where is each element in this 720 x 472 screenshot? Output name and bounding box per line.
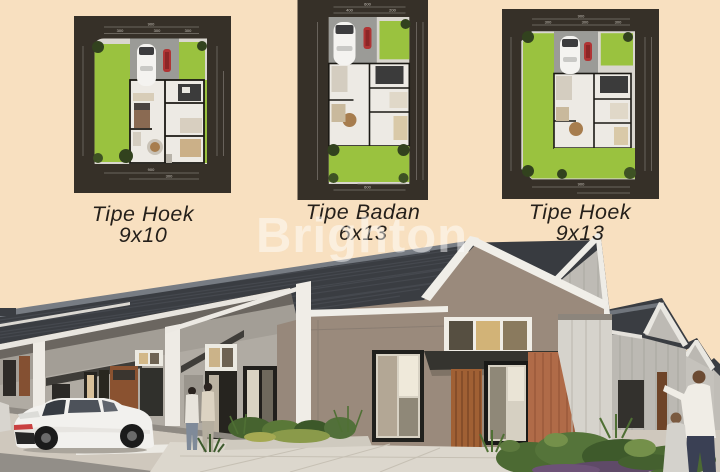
- svg-text:300: 300: [615, 20, 622, 25]
- svg-text:400: 400: [346, 8, 353, 13]
- svg-text:900: 900: [148, 167, 155, 172]
- svg-text:300: 300: [117, 28, 124, 33]
- svg-text:300: 300: [166, 174, 173, 179]
- svg-text:600: 600: [364, 2, 371, 7]
- svg-text:300: 300: [582, 20, 589, 25]
- svg-text:300: 300: [154, 28, 161, 33]
- svg-text:200: 200: [389, 8, 396, 13]
- svg-text:300: 300: [545, 20, 552, 25]
- svg-text:600: 600: [364, 185, 371, 190]
- svg-text:900: 900: [578, 14, 585, 19]
- svg-text:900: 900: [578, 182, 585, 187]
- svg-text:900: 900: [148, 22, 155, 27]
- svg-text:300: 300: [185, 28, 192, 33]
